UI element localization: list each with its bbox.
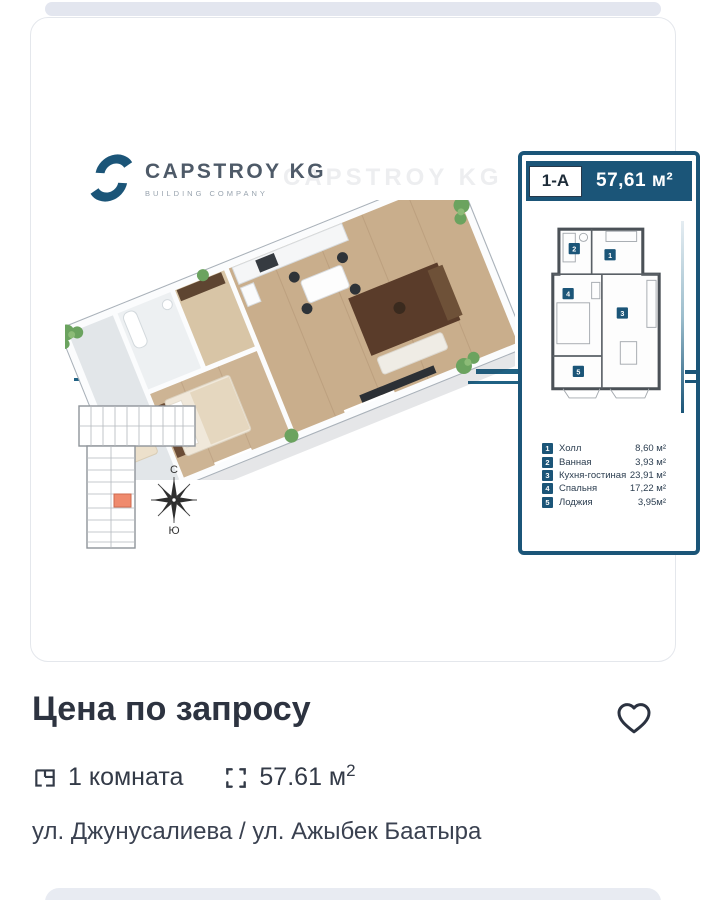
unit-spec-panel: 1-А 57,61 м²: [518, 151, 700, 555]
room-row: 4 Спальня 17,22 м²: [542, 482, 666, 495]
heart-icon: [614, 698, 654, 738]
room-row: 1 Холл 8,60 м²: [542, 442, 666, 455]
room-label: Холл: [559, 443, 581, 454]
address-label: ул. Джунусалиева / ул. Ажыбек Баатыра: [32, 818, 481, 846]
unit-code: 1-А: [529, 166, 582, 197]
decor-dash: [685, 370, 697, 374]
svg-text:5: 5: [576, 368, 580, 376]
room-area: 17,22 м²: [630, 483, 666, 494]
compass-icon: С Ю: [143, 460, 205, 536]
room-label: Кухня-гостиная: [559, 470, 626, 481]
room-area: 3,95м²: [638, 497, 666, 508]
room-label: Спальня: [559, 483, 597, 494]
favorite-button[interactable]: [614, 698, 654, 738]
rooms-icon: [32, 765, 58, 791]
room-marker: 1: [604, 249, 615, 260]
room-marker: 2: [569, 243, 580, 254]
capstroy-logo-icon: [83, 152, 135, 204]
primary-action-button[interactable]: [45, 888, 661, 900]
room-number: 5: [542, 497, 553, 508]
compass-north-label: С: [170, 464, 178, 476]
room-label: Ванная: [559, 457, 592, 468]
unit-spec-header: 1-А 57,61 м²: [526, 161, 692, 201]
room-area: 8,60 м²: [635, 443, 666, 454]
svg-text:1: 1: [608, 252, 612, 260]
room-row: 5 Лоджия 3,95м²: [542, 496, 666, 509]
decor-dash: [685, 380, 697, 383]
room-area: 3,93 м²: [635, 457, 666, 468]
room-label: Лоджия: [559, 497, 593, 508]
unit-total-area: 57,61 м²: [596, 170, 673, 192]
price-title: Цена по запросу: [32, 690, 311, 729]
decor-gradient-line: [681, 221, 684, 413]
room-number: 2: [542, 457, 553, 468]
watermark-text: CAPSTROY KG: [283, 164, 503, 192]
rooms-count-label: 1 комната: [68, 763, 183, 792]
room-marker: 3: [617, 307, 628, 318]
svg-text:2: 2: [572, 246, 576, 254]
compass-south-label: Ю: [168, 525, 179, 536]
previous-image-peek[interactable]: [45, 2, 661, 16]
listing-screen: CAPSTROY KG BUILDING COMPANY CAPSTROY KG: [0, 0, 706, 900]
summary-row: 1 комната 57.61 м2: [32, 763, 356, 792]
floor-plan-2d-drawing: 1 2 3 4 5: [538, 221, 676, 401]
room-area-list: 1 Холл 8,60 м² 2 Ванная 3,93 м² 3 Кухня-…: [542, 442, 666, 509]
svg-text:4: 4: [566, 291, 570, 299]
floor-plan-image-card[interactable]: CAPSTROY KG BUILDING COMPANY CAPSTROY KG: [30, 17, 676, 662]
room-area: 23,91 м²: [630, 470, 666, 481]
area-label: 57.61 м2: [259, 763, 355, 792]
room-row: 3 Кухня-гостиная 23,91 м²: [542, 469, 666, 482]
area-icon: [223, 765, 249, 791]
highlighted-unit: [114, 494, 131, 507]
room-number: 1: [542, 443, 553, 454]
room-row: 2 Ванная 3,93 м²: [542, 455, 666, 468]
room-number: 3: [542, 470, 553, 481]
room-marker: 5: [573, 366, 584, 377]
svg-text:3: 3: [620, 310, 624, 318]
room-number: 4: [542, 483, 553, 494]
room-marker: 4: [563, 288, 574, 299]
